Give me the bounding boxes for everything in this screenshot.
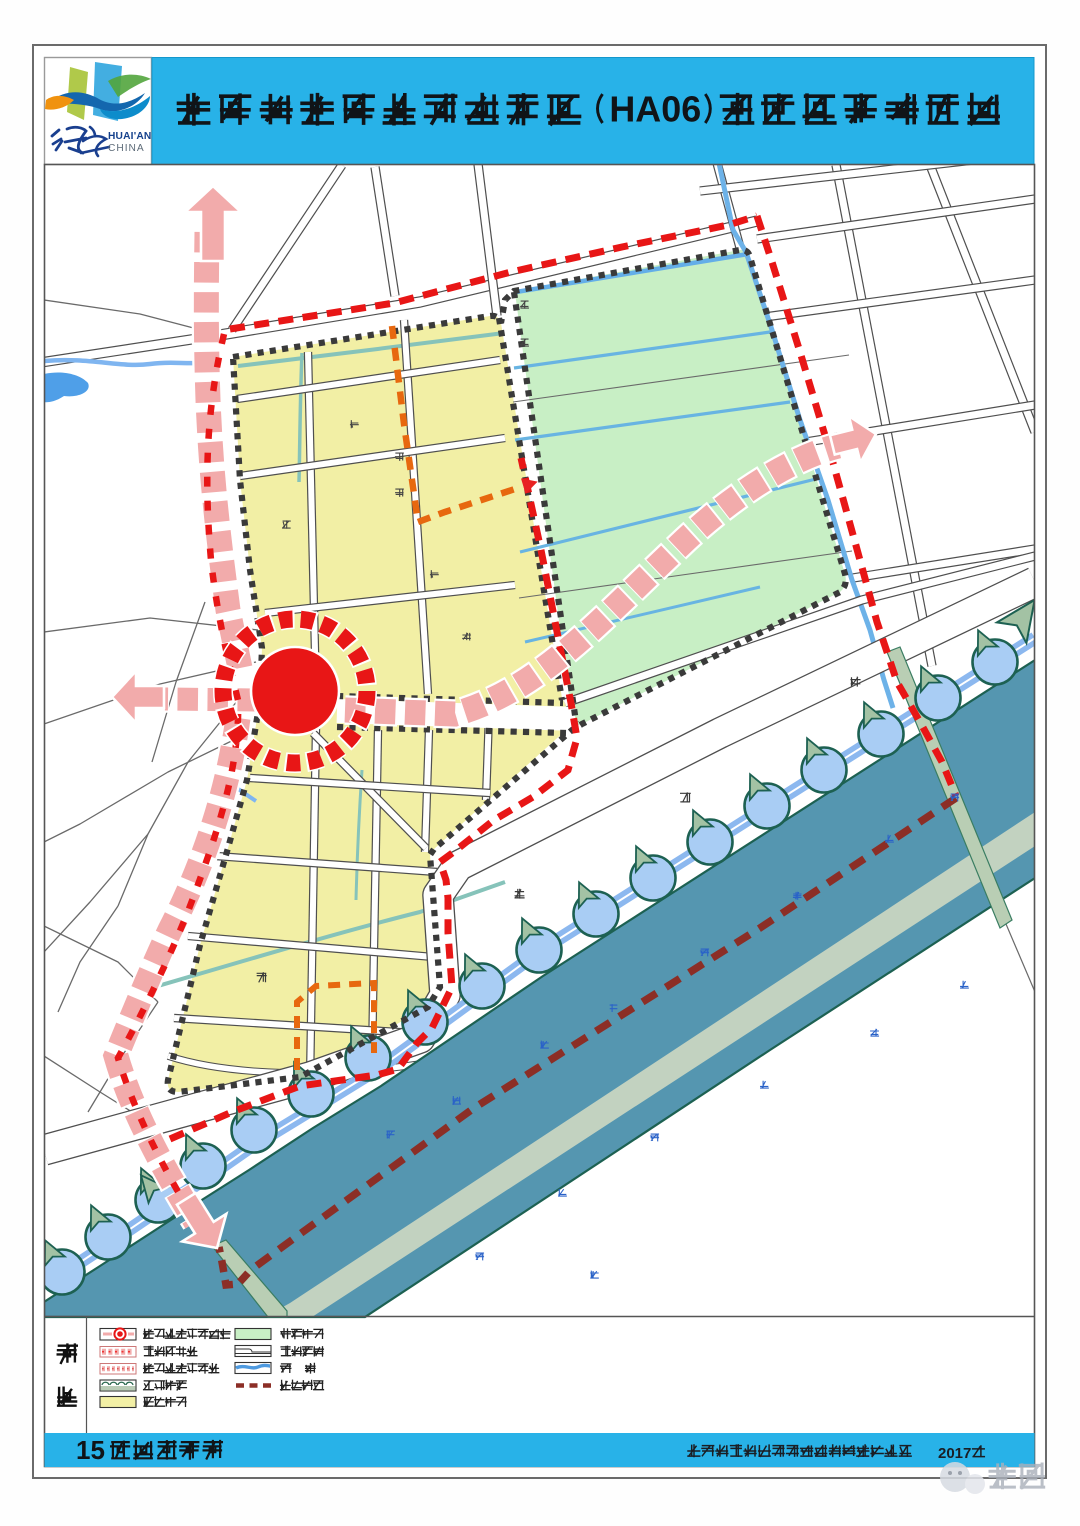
svg-text:CHINA: CHINA	[108, 143, 145, 154]
svg-text:HUAI'AN: HUAI'AN	[108, 131, 151, 142]
svg-text:2017: 2017	[938, 1445, 971, 1462]
svg-text:HA06: HA06	[609, 90, 701, 130]
svg-text:15: 15	[76, 1435, 105, 1465]
